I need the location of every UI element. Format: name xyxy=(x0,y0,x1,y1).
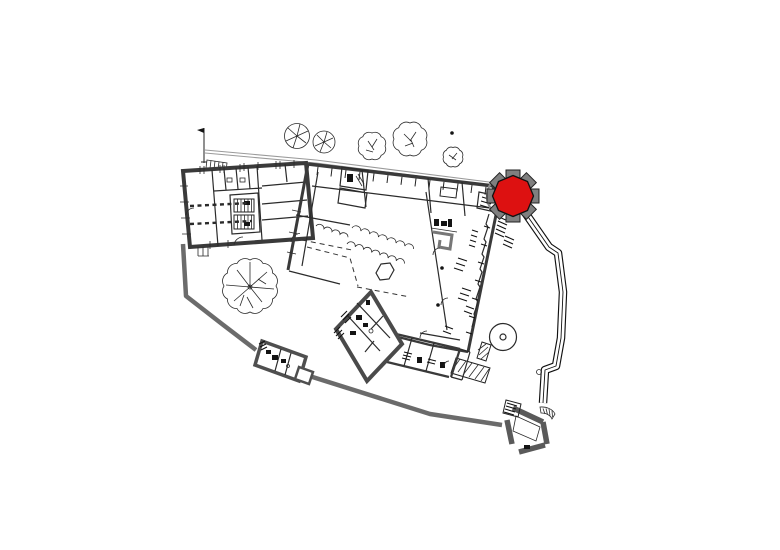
round-turret-base xyxy=(490,324,517,351)
site-plan-canvas xyxy=(0,0,780,550)
cloister-arcade xyxy=(316,224,414,263)
tree-cloud-icon xyxy=(393,122,427,156)
altar-cluster xyxy=(431,219,457,232)
tree-cloud-icon xyxy=(358,132,385,159)
flag-pole xyxy=(201,128,207,163)
highlighted-tower[interactable] xyxy=(487,170,539,222)
flag-icon xyxy=(197,128,204,133)
tree-cloud-icon xyxy=(443,147,463,167)
east-service-blocks xyxy=(443,230,478,334)
gatehouse-fan-steps xyxy=(540,407,555,419)
abbey-main-complex xyxy=(287,164,517,383)
tree-spoke-icon xyxy=(313,131,335,153)
tree-spoke-icon xyxy=(285,124,310,149)
access-path-to-tower xyxy=(524,211,563,403)
southeast-gatehouse xyxy=(503,400,555,452)
tower-highlight-octagon[interactable] xyxy=(493,176,534,217)
tree-sketch-large-icon xyxy=(223,259,278,314)
u-stair xyxy=(433,232,452,249)
southwest-room-cluster xyxy=(334,292,402,381)
boundary-outbuilding xyxy=(255,341,313,384)
courtyard-fountain-hexagon xyxy=(376,263,394,280)
shrub-dot xyxy=(450,131,454,135)
screenshot-root xyxy=(0,0,780,550)
